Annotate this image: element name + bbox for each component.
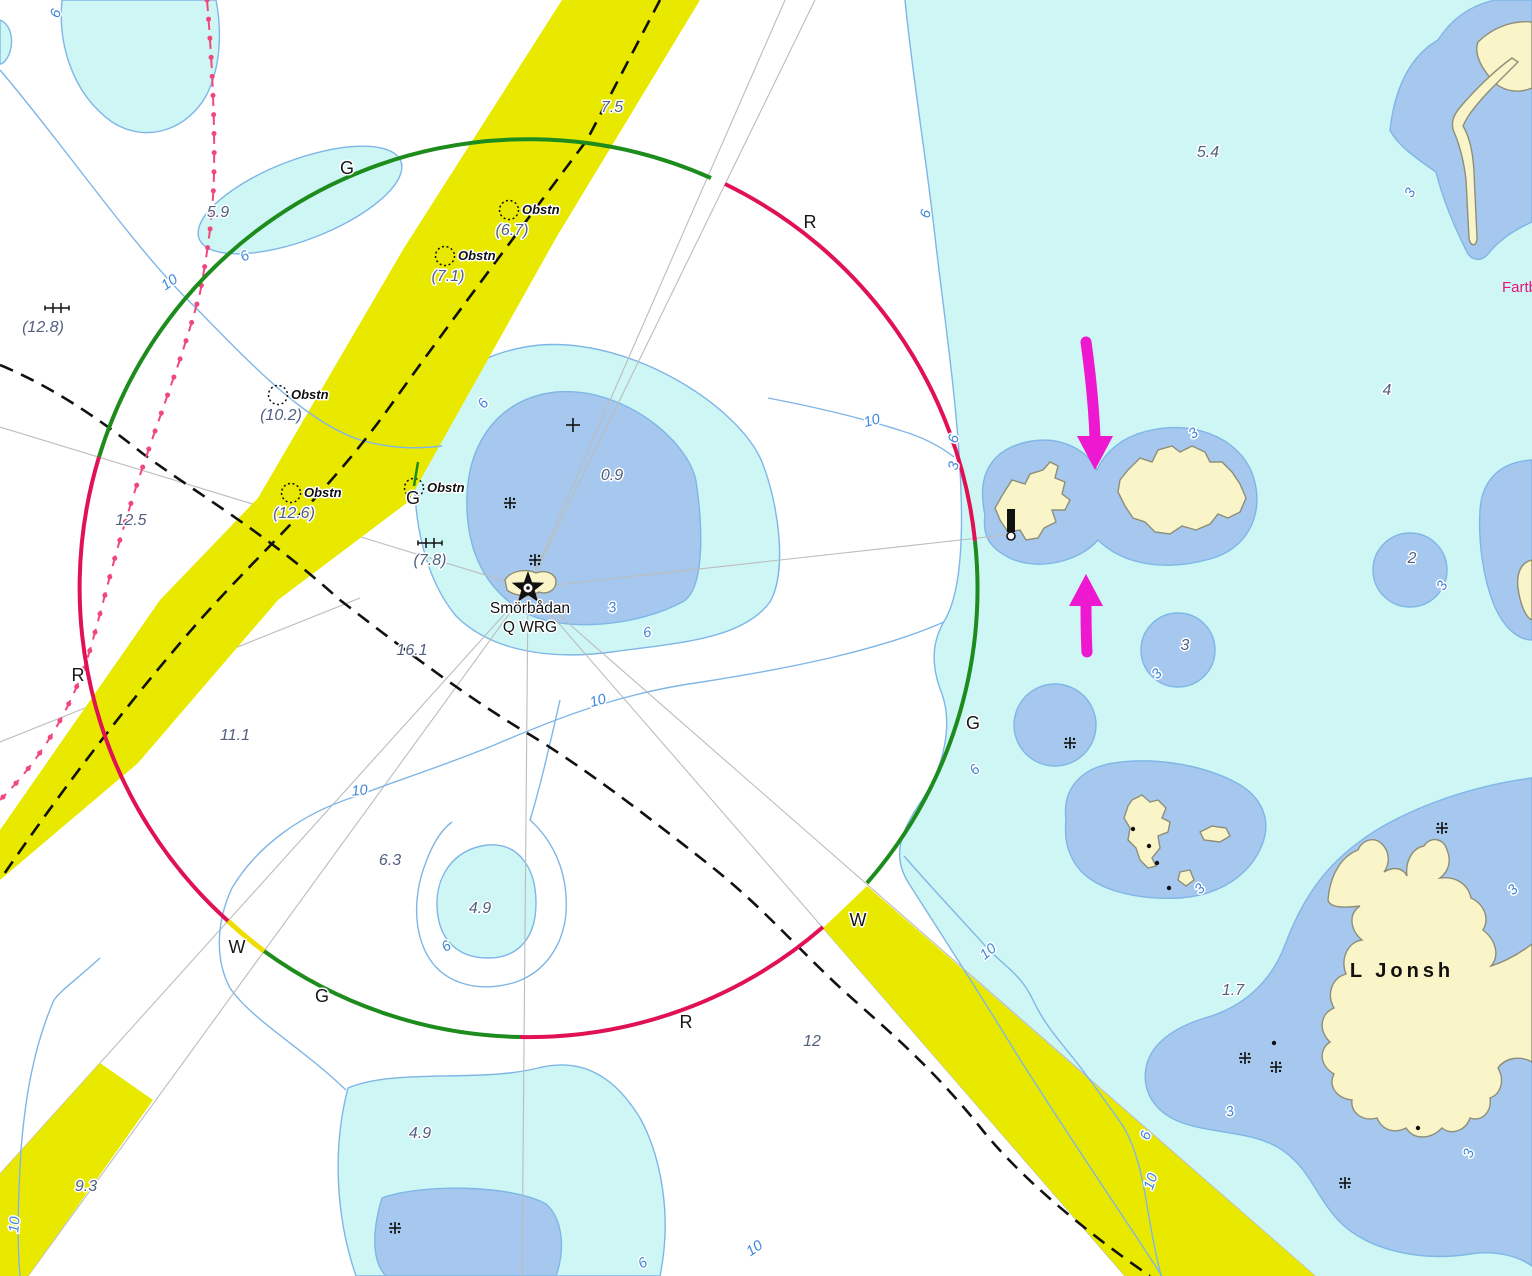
swept-sounding: (12.8) <box>22 303 69 336</box>
light-name-label: Smörbådan <box>490 600 570 617</box>
sector-letter-R: R <box>72 665 85 685</box>
beacon-icon <box>1007 509 1015 540</box>
rock-awash-icon <box>1270 1061 1282 1073</box>
depth-sounding: 6.3 <box>379 852 401 869</box>
depth-sounding: 12 <box>803 1033 821 1050</box>
islet-dot-icon <box>1167 886 1171 890</box>
obstruction-label: Obstn <box>522 202 560 217</box>
sector-letter-W: W <box>229 937 246 957</box>
contour-depth-label: 10 <box>588 691 608 711</box>
depth-sounding: 11.1 <box>220 727 250 744</box>
rock-awash-icon <box>504 497 516 509</box>
islet-dot-icon <box>1272 1041 1276 1045</box>
islet-dot-icon <box>1155 861 1159 865</box>
rock-awash-icon <box>1239 1052 1251 1064</box>
rock-awash-icon <box>1339 1177 1351 1189</box>
rock-awash-icon <box>529 554 541 566</box>
depth-sounding: 0.9 <box>601 467 623 484</box>
depth-sounding: 5.4 <box>1197 144 1219 161</box>
obstruction-depth: (7.1) <box>432 268 465 285</box>
rock-awash-icon <box>1436 822 1448 834</box>
contour-depth-label: 10 <box>862 411 882 431</box>
nautical-chart[interactable]: Obstn(6.7)Obstn(7.1)Obstn(10.2)Obstn(12.… <box>0 0 1532 1276</box>
light-characteristic-label: Q WRG <box>503 619 557 636</box>
islet-dot-icon <box>1416 1126 1420 1130</box>
depth-sounding: 9.3 <box>75 1178 97 1195</box>
swept-depth: (12.8) <box>22 319 64 336</box>
speed-limit-label: Fartb <box>1502 279 1532 296</box>
depth-sounding: 16.1 <box>396 642 427 659</box>
depth-sounding: 3 <box>1181 637 1190 654</box>
sector-letter-G: G <box>340 158 354 178</box>
sector-letter-W: W <box>850 910 867 930</box>
sector-letter-R: R <box>680 1012 693 1032</box>
depth-sounding: 4 <box>1383 382 1392 399</box>
contour-depth-label: 10 <box>744 1238 766 1260</box>
obstruction-depth: (10.2) <box>260 407 302 424</box>
depth-sounding: 5.9 <box>207 204 229 221</box>
depth-sounding: 7.5 <box>601 99 623 116</box>
obstruction-label: Obstn <box>458 248 496 263</box>
rock-awash-icon <box>389 1222 401 1234</box>
buoy-color-label: G <box>406 488 420 508</box>
contour-depth-label: 10 <box>351 782 368 799</box>
sector-letter-R: R <box>804 212 817 232</box>
contour-depth-label: 10 <box>6 1216 23 1233</box>
depth-sounding: 2 <box>1407 550 1417 567</box>
obstruction-depth: (12.6) <box>273 505 315 522</box>
obstruction-label: Obstn <box>291 387 329 402</box>
depth-sounding: 1.7 <box>1222 982 1245 999</box>
swept-depth: (7.8) <box>414 552 447 569</box>
rock-awash-icon <box>1064 737 1076 749</box>
swept-sounding: (7.8) <box>414 538 447 569</box>
island-name-label: L Jonsh <box>1350 960 1454 982</box>
obstruction-label: Obstn <box>427 480 465 495</box>
obstruction-label: Obstn <box>304 485 342 500</box>
depth-sounding: 12.5 <box>115 512 146 529</box>
islet-dot-icon <box>1147 844 1151 848</box>
depth-sounding: 4.9 <box>409 1125 431 1142</box>
sector-letter-G: G <box>315 986 329 1006</box>
obstruction-depth: (6.7) <box>496 222 529 239</box>
depth-sounding: 4.9 <box>469 900 491 917</box>
chart-canvas: Obstn(6.7)Obstn(7.1)Obstn(10.2)Obstn(12.… <box>0 0 1532 1276</box>
contour-depth-label: 10 <box>159 272 181 294</box>
islet-dot-icon <box>1131 827 1135 831</box>
sector-letter-G: G <box>966 713 980 733</box>
